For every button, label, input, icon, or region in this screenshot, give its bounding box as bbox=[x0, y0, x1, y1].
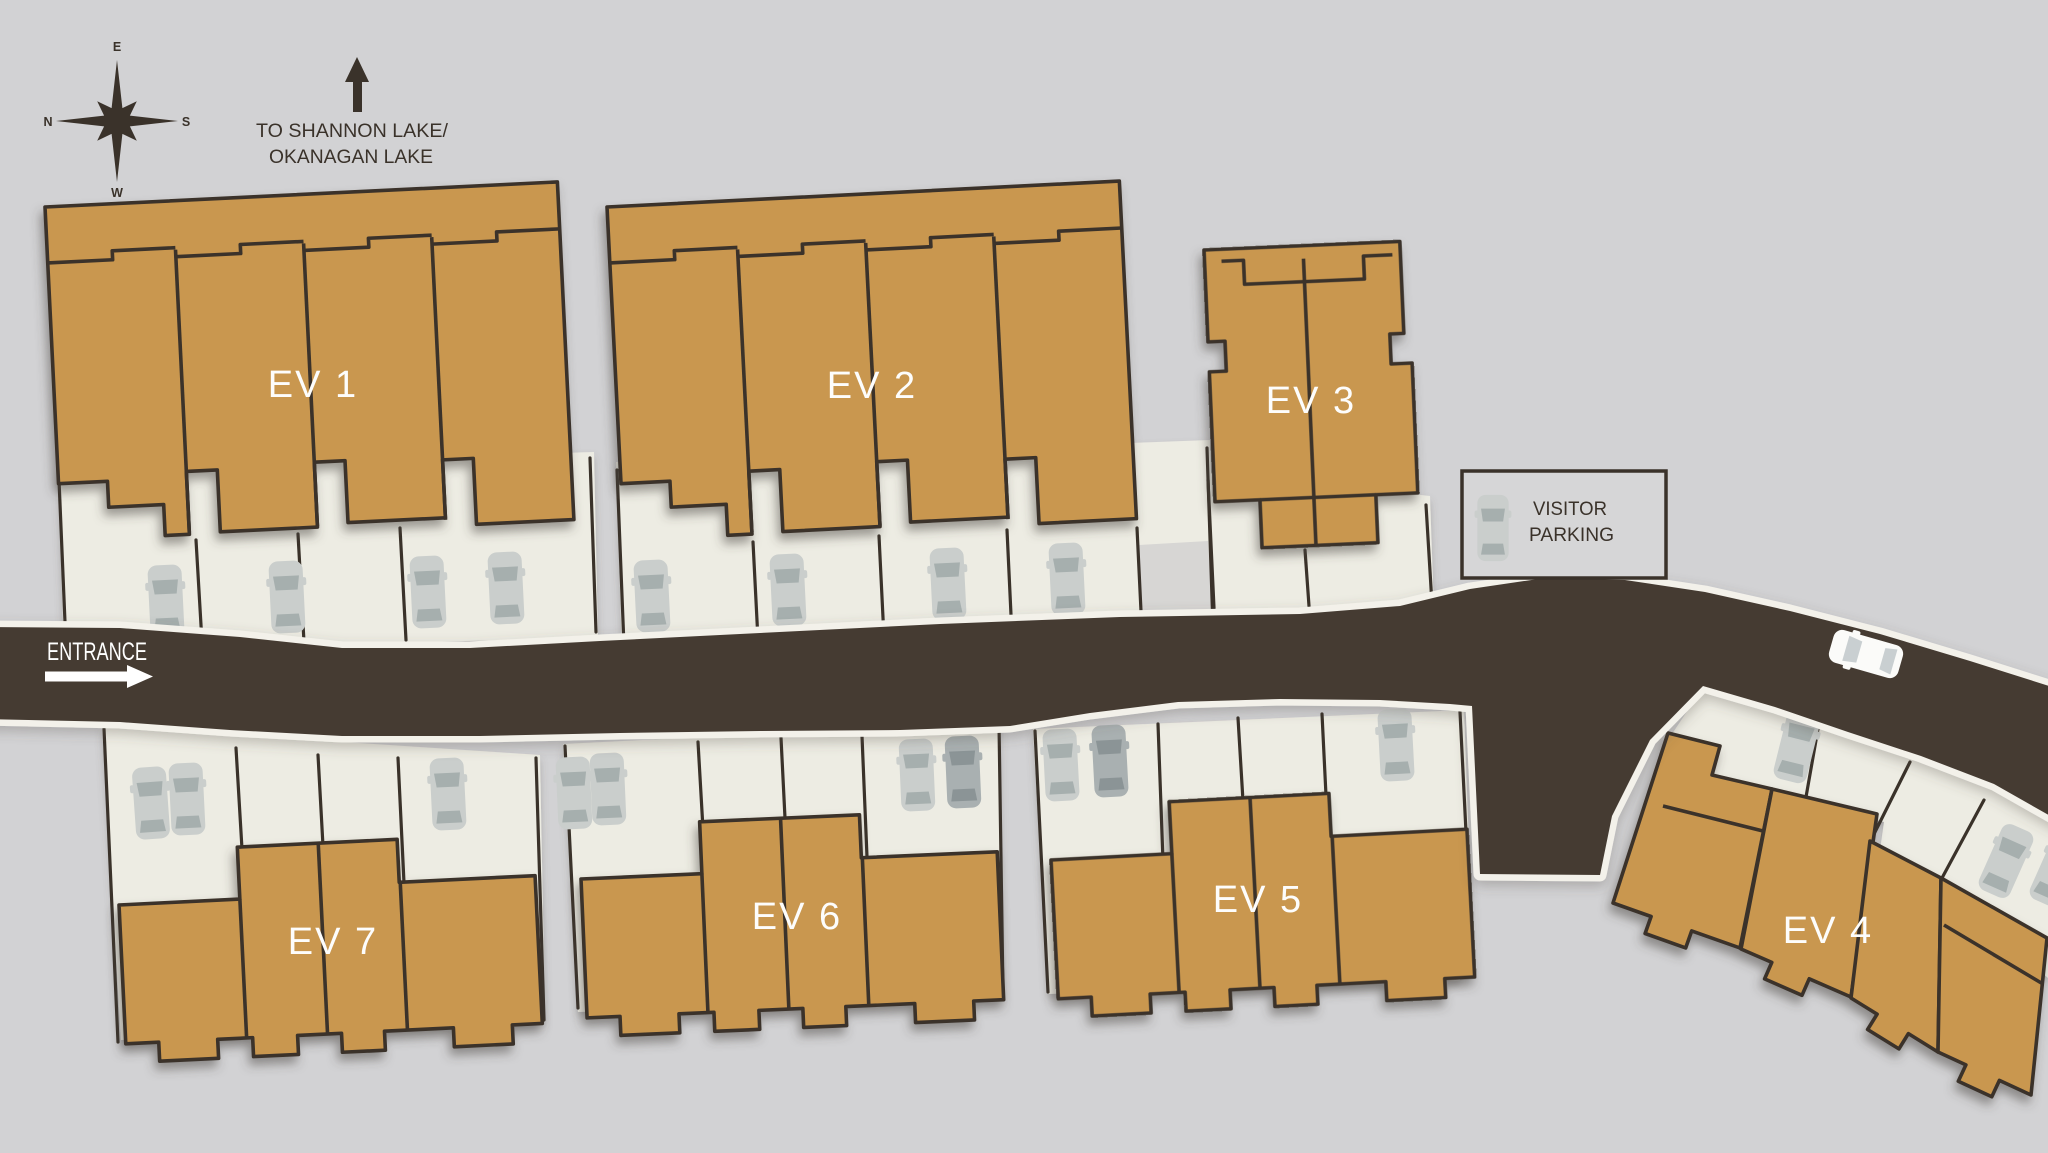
svg-text:EV 4: EV 4 bbox=[1783, 910, 1873, 952]
svg-text:TO SHANNON LAKE/: TO SHANNON LAKE/ bbox=[256, 121, 449, 142]
svg-text:S: S bbox=[182, 115, 190, 129]
svg-text:EV 2: EV 2 bbox=[827, 365, 917, 407]
svg-text:VISITOR: VISITOR bbox=[1533, 499, 1607, 520]
svg-text:EV 7: EV 7 bbox=[288, 921, 378, 963]
svg-text:E: E bbox=[113, 40, 121, 54]
svg-text:OKANAGAN LAKE: OKANAGAN LAKE bbox=[269, 147, 433, 168]
svg-text:EV 5: EV 5 bbox=[1213, 879, 1303, 921]
svg-text:W: W bbox=[111, 186, 123, 200]
svg-text:N: N bbox=[43, 115, 52, 129]
svg-text:EV 3: EV 3 bbox=[1266, 380, 1356, 422]
svg-text:ENTRANCE: ENTRANCE bbox=[47, 638, 147, 666]
svg-text:EV 1: EV 1 bbox=[268, 364, 358, 406]
svg-text:PARKING: PARKING bbox=[1529, 525, 1614, 546]
svg-text:EV 6: EV 6 bbox=[752, 896, 842, 938]
